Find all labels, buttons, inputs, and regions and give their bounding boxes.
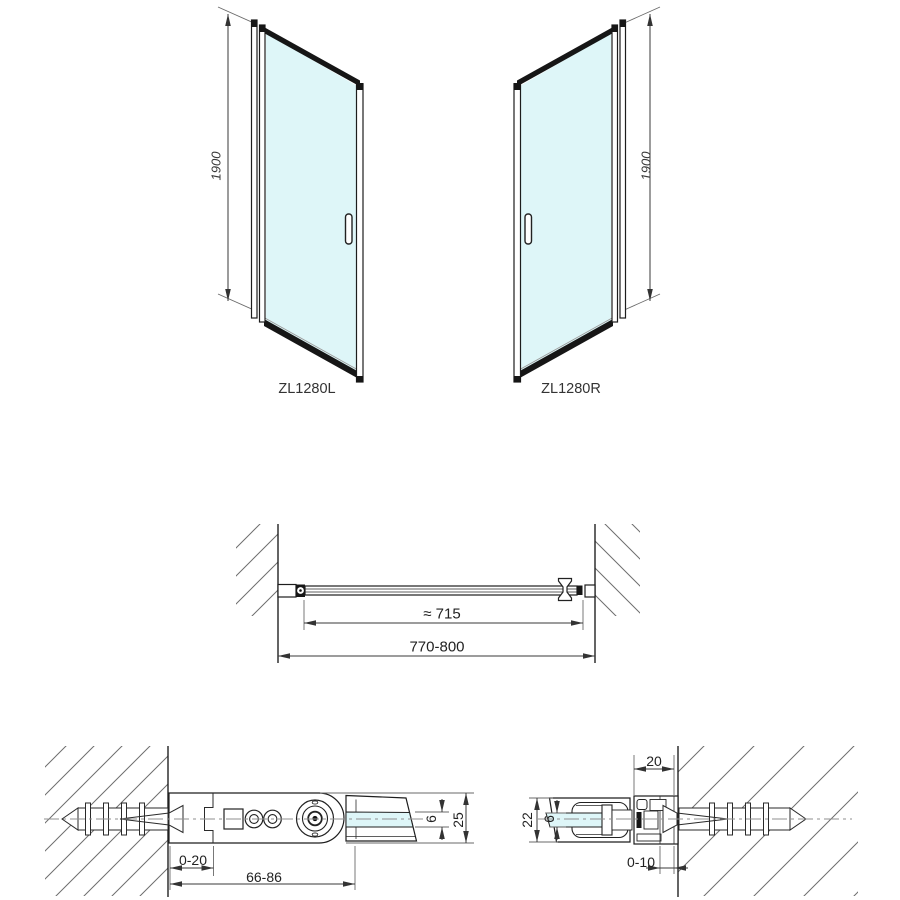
hinge-profile-bar xyxy=(612,25,618,322)
wall-profile-bar xyxy=(252,20,258,318)
pivot-mechanism xyxy=(297,800,334,837)
wall-hatch-right xyxy=(595,524,640,616)
dim-label-wall-adjust: 0-20 xyxy=(179,853,207,867)
extension-line xyxy=(622,294,660,311)
extension-line xyxy=(218,7,256,24)
wall-profile-detail xyxy=(529,746,858,897)
wall-profile-bar xyxy=(620,20,626,318)
clamp-bar xyxy=(602,805,612,835)
dim-label-wall-gap: 0-10 xyxy=(627,855,655,869)
wall-hatch-left xyxy=(236,524,278,616)
wall-jamb-profile xyxy=(585,585,595,597)
adjustment-bolt xyxy=(612,810,632,830)
door-edge-bar xyxy=(514,84,521,382)
model-label-right: ZL1280R xyxy=(541,382,601,397)
door-handle xyxy=(525,214,532,244)
extension-line xyxy=(622,7,660,24)
dim-label-glass-width: ≈ 715 xyxy=(423,607,460,622)
glass-panel xyxy=(266,33,357,377)
dim-label-height-right: 1900 xyxy=(640,152,653,181)
dim-label-glass-thickness-left: 6 xyxy=(424,815,438,823)
dim-label-mount-range: 66-86 xyxy=(246,870,282,884)
dim-label-glass-thickness-right: 6 xyxy=(542,815,556,823)
door-end-cap xyxy=(577,586,583,596)
left-door-elevation xyxy=(218,7,364,382)
glass-panel-section xyxy=(346,812,413,827)
door-glass-section xyxy=(305,586,577,595)
door-edge-bar xyxy=(357,84,364,382)
door-handle xyxy=(346,214,353,244)
dim-label-profile-depth-right: 22 xyxy=(520,812,534,828)
technical-drawing-sheet: ZL1280L ZL1280R 1900 1900 ≈ 715 770-800 … xyxy=(0,0,900,900)
shower-door-drawing xyxy=(0,0,900,900)
hinge-profile-bar xyxy=(260,25,266,322)
dim-label-height-left: 1900 xyxy=(210,152,223,181)
right-door-elevation xyxy=(514,7,661,382)
dim-label-profile-depth-left: 25 xyxy=(451,812,465,828)
dim-label-opening-range: 770-800 xyxy=(409,640,464,655)
model-label-left: ZL1280L xyxy=(278,382,335,397)
wall-mount-profile xyxy=(278,585,296,598)
dim-label-profile-width: 20 xyxy=(646,754,662,768)
gasket xyxy=(637,812,642,828)
glass-panel xyxy=(520,33,611,377)
extension-line xyxy=(218,294,256,311)
